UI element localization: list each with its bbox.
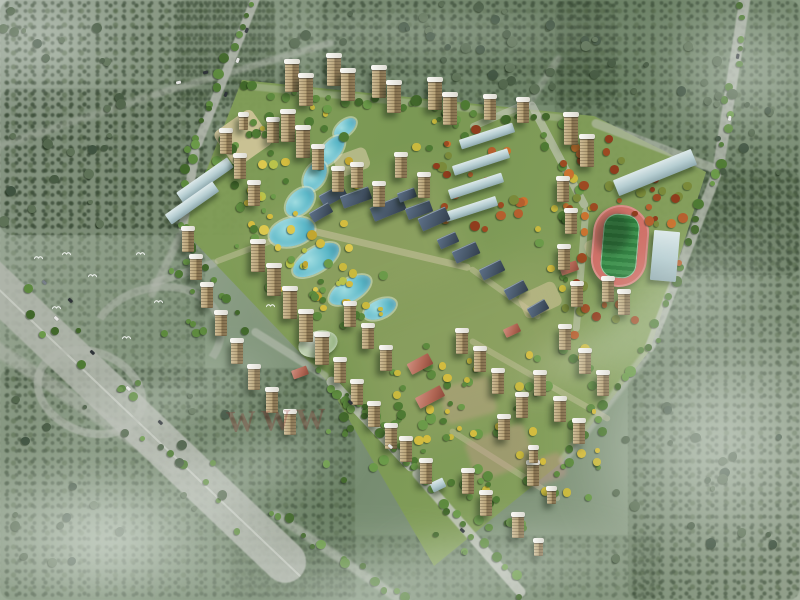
tower-roof-cap: [579, 134, 595, 139]
residential-tower: [234, 155, 246, 179]
tree: [107, 133, 112, 138]
tower-roof-cap: [189, 254, 203, 259]
tree: [318, 279, 324, 285]
tree: [271, 194, 276, 199]
residential-tower: [190, 256, 202, 280]
tower-roof-cap: [564, 208, 578, 213]
tower-roof-cap: [282, 286, 298, 291]
tree: [530, 84, 540, 94]
tree: [222, 294, 231, 303]
tree: [28, 205, 36, 213]
tree: [439, 362, 446, 369]
residential-tower: [387, 82, 401, 113]
tree: [418, 420, 428, 430]
tower-roof-cap: [361, 323, 375, 328]
bird: [122, 327, 131, 333]
tree: [283, 178, 289, 184]
residential-tower: [296, 127, 310, 158]
residential-tower: [380, 347, 392, 371]
residential-tower: [332, 168, 344, 192]
bird: [154, 291, 163, 297]
tower-roof-cap: [219, 128, 233, 133]
tower-roof-cap: [483, 94, 497, 99]
tower-roof-cap: [479, 490, 493, 495]
tree: [281, 158, 289, 166]
tower-roof-cap: [455, 328, 469, 333]
tree: [394, 370, 400, 376]
residential-tower: [267, 119, 279, 143]
tree: [444, 381, 451, 388]
tree: [378, 307, 383, 312]
tower-roof-cap: [247, 180, 261, 185]
tree: [268, 150, 274, 156]
tower-roof-cap: [350, 162, 364, 167]
tower-roof-cap: [266, 263, 282, 268]
tree: [259, 225, 269, 235]
bird: [52, 297, 61, 303]
tower-roof-cap: [379, 345, 393, 350]
tree: [445, 152, 452, 159]
tower-roof-cap: [442, 92, 458, 97]
tree: [671, 194, 680, 203]
bird-icon: [136, 250, 145, 256]
tree: [632, 211, 638, 217]
tree: [646, 204, 652, 210]
residential-tower: [267, 265, 281, 296]
tower-roof-cap: [266, 117, 280, 122]
tree: [617, 198, 622, 203]
tree: [169, 268, 174, 273]
tower-roof-cap: [343, 301, 357, 306]
tower-roof-cap: [181, 226, 195, 231]
residential-tower: [484, 96, 496, 120]
tree: [437, 117, 442, 122]
tree: [252, 129, 261, 138]
tower-roof-cap: [417, 172, 431, 177]
tower-roof-cap: [516, 97, 530, 102]
tree: [443, 434, 450, 441]
residential-tower: [239, 114, 248, 130]
tree: [180, 164, 190, 174]
tree: [393, 391, 401, 399]
tree: [412, 143, 421, 152]
tree: [349, 269, 357, 277]
fog-patch: [40, 0, 800, 80]
tree: [659, 187, 666, 194]
tree: [288, 256, 295, 263]
tree: [486, 482, 491, 487]
tree: [346, 281, 353, 288]
car: [175, 80, 180, 84]
tree: [433, 163, 439, 169]
tower-roof-cap: [563, 112, 579, 117]
tree: [461, 100, 470, 109]
tree: [397, 410, 406, 419]
residential-tower: [420, 460, 432, 484]
tree: [573, 194, 581, 202]
aerial-rendering-scene: WWW: [0, 0, 800, 600]
tree: [379, 271, 388, 280]
bird-icon: [154, 298, 163, 304]
tree: [440, 418, 446, 424]
tree: [579, 181, 589, 191]
tree: [247, 81, 256, 90]
tree: [339, 263, 347, 271]
tree: [482, 226, 488, 232]
tree: [499, 79, 508, 88]
tree: [468, 172, 473, 177]
tree: [560, 160, 567, 167]
bird: [62, 243, 71, 249]
tree: [275, 244, 281, 250]
tree: [323, 105, 331, 113]
tree: [636, 188, 645, 197]
residential-tower: [580, 136, 594, 167]
tree: [6, 186, 16, 196]
tree: [551, 205, 558, 212]
bird-icon: [122, 334, 131, 340]
fog-patch: [310, 500, 730, 600]
tree: [324, 259, 333, 268]
tree: [206, 106, 211, 111]
tower-roof-cap: [311, 144, 325, 149]
bird-icon: [52, 304, 61, 310]
tree: [448, 479, 454, 485]
tree: [470, 221, 480, 231]
residential-tower: [312, 146, 324, 170]
tree: [101, 145, 107, 151]
bird-icon: [62, 250, 71, 256]
tower-roof-cap: [233, 153, 247, 158]
residential-tower: [517, 99, 529, 123]
bird: [88, 265, 97, 271]
residential-tower: [182, 228, 194, 252]
residential-tower: [362, 325, 374, 349]
tree: [542, 113, 549, 120]
tree: [470, 430, 477, 437]
tower-roof-cap: [372, 181, 386, 186]
tree: [76, 328, 80, 332]
tree: [432, 119, 437, 124]
residential-tower: [395, 154, 407, 178]
residential-tower: [281, 111, 295, 142]
tree: [88, 145, 97, 154]
tower-roof-cap: [461, 468, 475, 473]
residential-tower: [248, 182, 260, 206]
tree: [184, 146, 191, 153]
tree: [0, 216, 9, 226]
tree: [258, 160, 267, 169]
tree: [50, 175, 58, 183]
tree: [581, 212, 589, 220]
tree: [202, 264, 209, 271]
tree: [267, 214, 272, 219]
tower-roof-cap: [280, 109, 296, 114]
tower-roof-cap: [238, 112, 249, 117]
tree: [458, 404, 464, 410]
tower-roof-cap: [200, 282, 214, 287]
tree: [51, 327, 59, 335]
tree: [514, 209, 523, 218]
residential-tower: [251, 241, 265, 272]
bird-icon: [34, 254, 43, 260]
tree: [191, 140, 200, 149]
bird: [34, 247, 43, 253]
tree: [321, 125, 328, 132]
residential-tower: [557, 178, 569, 202]
tower-roof-cap: [331, 166, 345, 171]
tower-roof-cap: [250, 239, 266, 244]
tree: [316, 239, 325, 248]
tower-roof-cap: [419, 458, 433, 463]
tree: [363, 100, 372, 109]
tree: [355, 98, 363, 106]
tree: [303, 261, 309, 267]
tree: [411, 95, 421, 105]
tower-roof-cap: [295, 125, 311, 130]
residential-tower: [462, 470, 474, 494]
tower-roof-cap: [386, 80, 402, 85]
tree: [267, 93, 274, 100]
tree: [190, 321, 196, 327]
tree: [312, 95, 320, 103]
tree: [483, 471, 493, 481]
tree: [282, 93, 291, 102]
tree: [340, 220, 348, 228]
tree: [287, 225, 295, 233]
residential-tower: [220, 130, 232, 154]
tower-roof-cap: [556, 176, 570, 181]
tower-roof-cap: [394, 152, 408, 157]
tree: [362, 302, 369, 309]
residential-tower: [351, 164, 363, 188]
tree: [426, 145, 433, 152]
tree: [293, 211, 298, 216]
tree: [443, 171, 450, 178]
residential-tower: [443, 94, 457, 125]
tree: [88, 200, 93, 205]
tree: [470, 110, 477, 117]
residential-tower: [344, 303, 356, 327]
watermark-text: WWW: [225, 402, 331, 440]
residential-tower: [201, 284, 213, 308]
bird: [266, 295, 275, 301]
tree: [26, 310, 35, 319]
bird-icon: [266, 302, 275, 308]
tree: [531, 114, 537, 120]
tree: [496, 211, 505, 220]
residential-tower: [428, 79, 442, 110]
tree: [24, 284, 33, 293]
bird-icon: [88, 272, 97, 278]
residential-tower: [418, 174, 430, 198]
tree: [231, 181, 238, 188]
tree: [326, 95, 331, 100]
tree: [423, 343, 430, 350]
bird: [136, 243, 145, 249]
residential-tower: [373, 183, 385, 207]
tree: [235, 310, 240, 315]
residential-tower: [564, 114, 578, 145]
tower-roof-cap: [214, 310, 228, 315]
tree: [213, 83, 221, 91]
tree: [443, 374, 452, 383]
